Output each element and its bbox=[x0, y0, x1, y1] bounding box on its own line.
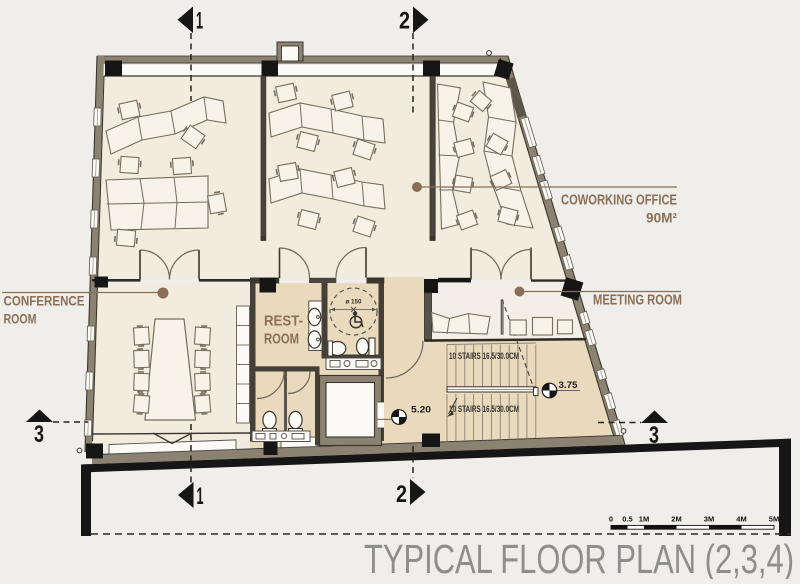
svg-text:COWORKING OFFICE: COWORKING OFFICE bbox=[561, 193, 677, 209]
svg-text:CONFERENCE: CONFERENCE bbox=[4, 294, 85, 309]
svg-text:ROOM: ROOM bbox=[4, 312, 37, 327]
svg-text:3: 3 bbox=[649, 422, 659, 449]
svg-text:TYPICAL FLOOR PLAN (2,3,4): TYPICAL FLOOR PLAN (2,3,4) bbox=[364, 536, 794, 579]
svg-text:3M: 3M bbox=[704, 515, 714, 524]
svg-text:10 STAIRS 16.5/30.0CM: 10 STAIRS 16.5/30.0CM bbox=[449, 404, 519, 414]
svg-text:REST-: REST- bbox=[264, 313, 303, 330]
svg-text:0: 0 bbox=[609, 515, 613, 524]
svg-text:ROOM: ROOM bbox=[264, 331, 299, 348]
svg-text:90M²: 90M² bbox=[646, 210, 677, 226]
svg-text:5.20: 5.20 bbox=[411, 405, 431, 415]
svg-text:MEETING ROOM: MEETING ROOM bbox=[593, 293, 682, 309]
svg-text:1: 1 bbox=[197, 483, 204, 510]
svg-text:3: 3 bbox=[34, 421, 44, 448]
svg-text:1M: 1M bbox=[639, 515, 649, 524]
svg-text:3.75: 3.75 bbox=[559, 380, 578, 390]
svg-text:10 STAIRS 16.5/30.0CM: 10 STAIRS 16.5/30.0CM bbox=[449, 351, 519, 361]
svg-text:4M: 4M bbox=[736, 515, 746, 524]
svg-text:2: 2 bbox=[396, 481, 407, 508]
svg-text:2: 2 bbox=[399, 8, 410, 35]
svg-text:2M: 2M bbox=[671, 515, 681, 524]
svg-text:1: 1 bbox=[196, 8, 203, 35]
svg-text:ø 150: ø 150 bbox=[346, 299, 362, 306]
svg-text:5M: 5M bbox=[769, 515, 779, 524]
svg-text:0.5: 0.5 bbox=[622, 515, 632, 524]
